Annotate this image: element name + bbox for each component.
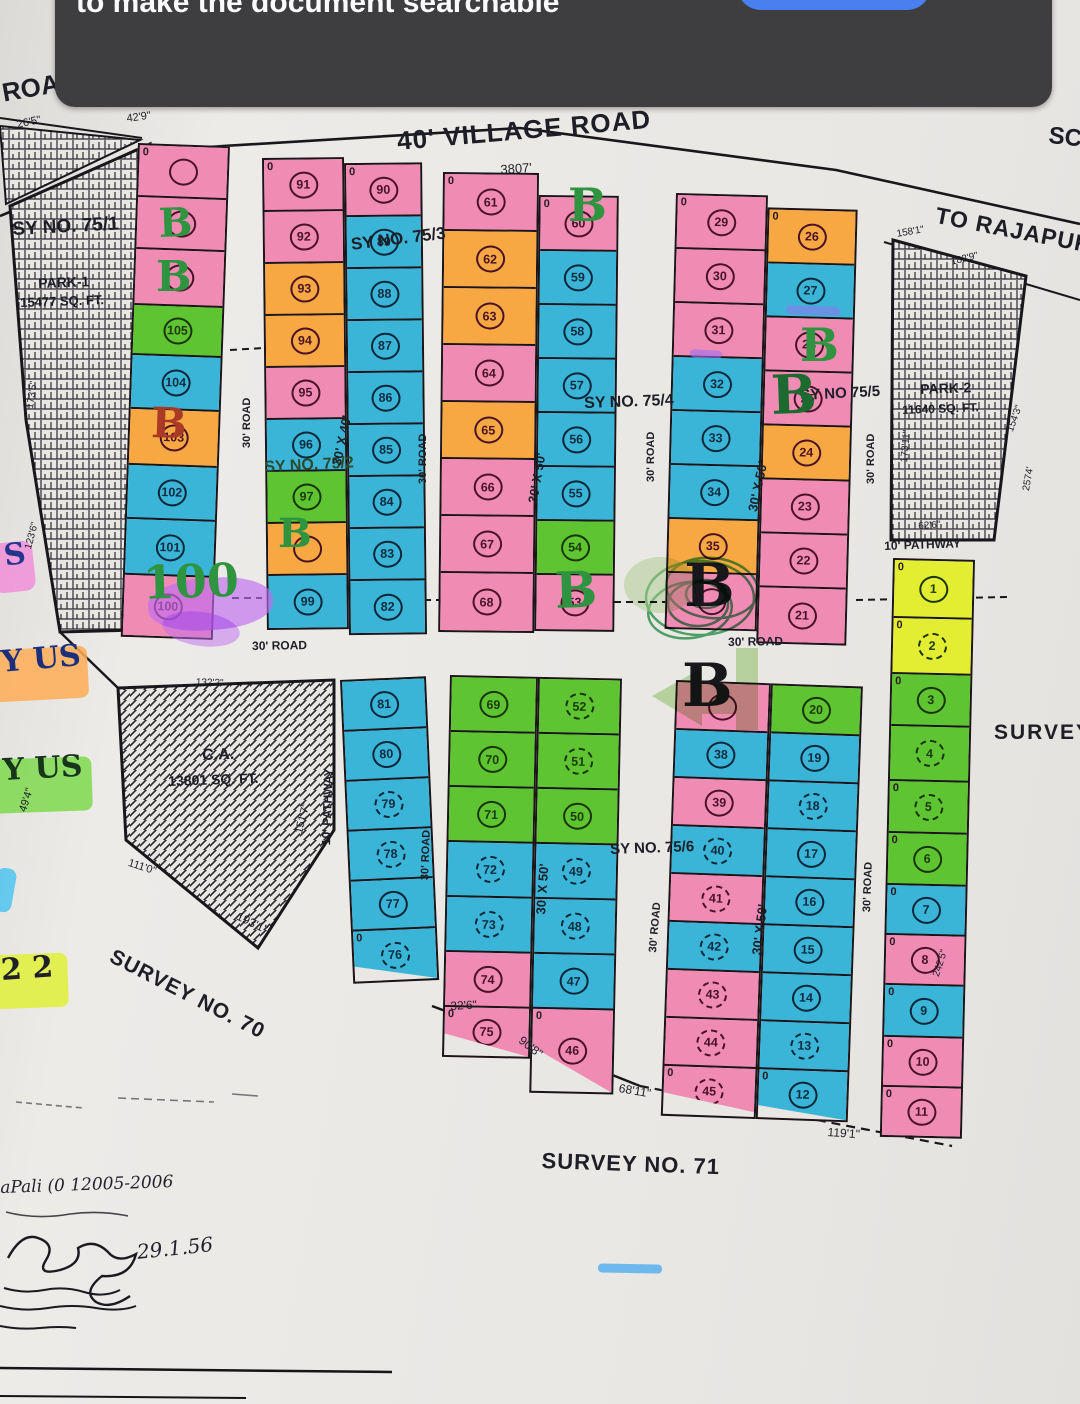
bottom-scan-lines xyxy=(0,1368,392,1398)
green-highlight-blob xyxy=(624,557,696,613)
handwriting-signature xyxy=(0,1212,136,1329)
map-scribbles xyxy=(0,0,1080,1404)
scanned-survey-layout-document: 0105104103102101100091929394959697990908… xyxy=(0,0,1080,1404)
pencil-dashes xyxy=(16,1094,258,1108)
toast: to make the document searchable xyxy=(55,0,1052,107)
toast-action-button[interactable] xyxy=(737,0,931,10)
toast-message: to make the document searchable xyxy=(76,0,560,20)
green-arrow-highlight-plot37 xyxy=(652,648,758,730)
